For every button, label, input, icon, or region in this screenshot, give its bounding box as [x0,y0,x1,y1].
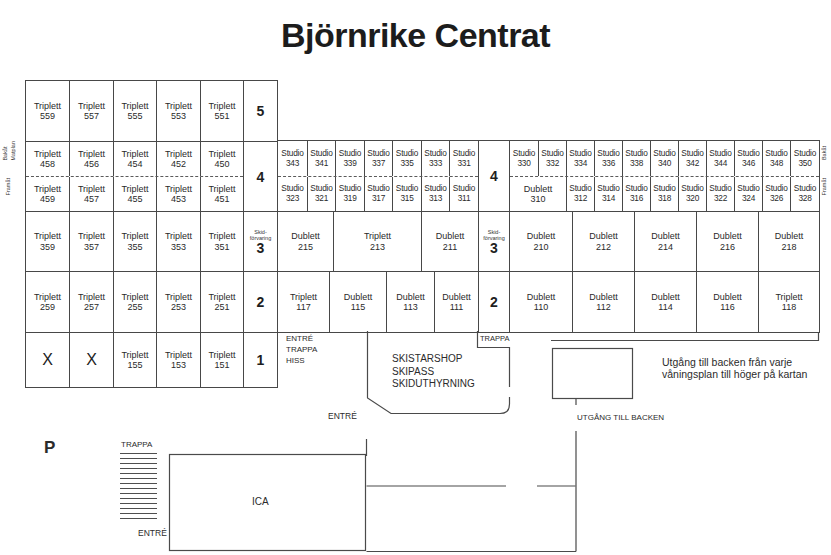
floor-row: Dublett215Triplett213Dublett211 [278,211,478,271]
floor-number-cell: 4 [244,141,277,211]
room-studio-338: Studio338 [622,141,650,176]
building-block-right-rooms: Studio330Studio332Studio334Studio336Stud… [509,140,820,333]
room-triplett-117: Triplett117 [278,272,329,332]
room-studio-322: Studio322 [706,177,734,211]
entre-left-label: ENTRÉ [138,528,167,538]
room-triplett-456: Triplett456 [69,142,113,176]
entre-shop-label: ENTRÉ [328,411,357,421]
floor-row: Triplett117Dublett115Dublett113Dublett11… [278,271,478,332]
room-studio-315: Studio315 [392,177,421,211]
room-studio-328: Studio328 [790,177,819,211]
room-triplett-118: Triplett118 [758,272,819,332]
room-triplett-151: Triplett151 [200,333,243,387]
room-studio-336: Studio336 [594,141,622,176]
floor-number: 4 [490,169,498,183]
room-triplett-559: Triplett559 [26,81,69,141]
floor-number: 4 [257,170,265,184]
room-triplett-259: Triplett259 [26,272,69,332]
floor-row: Dublett110Dublett112Dublett114Dublett116… [510,271,819,332]
room-triplett-455: Triplett455 [113,177,156,211]
room-triplett-153: Triplett153 [156,333,200,387]
floor-row: Triplett459Triplett457Triplett455Triplet… [26,176,243,211]
room-triplett-213: Triplett213 [333,212,421,271]
room-dublett-111: Dublett111 [434,272,478,332]
room-triplett-451: Triplett451 [200,177,243,211]
floor-number-cell: Skid-förvaring3 [479,211,509,271]
room-studio-343: Studio343 [278,141,307,176]
room-dublett-215: Dublett215 [278,212,333,271]
ica-label: ICA [252,496,269,507]
room-triplett-458: Triplett458 [26,142,69,176]
exit-stair-box [553,349,633,399]
room-triplett-551: Triplett551 [200,81,243,141]
room-dublett-112: Dublett112 [572,272,634,332]
floor-row: Triplett559Triplett557Triplett555Triplet… [26,81,243,141]
skistarshop-label: SKISTARSHOP SKIPASS SKIDUTHYRNING [392,353,475,391]
room-triplett-454: Triplett454 [113,142,156,176]
floor-row: Dublett210Dublett212Dublett214Dublett216… [510,211,819,271]
floor-row: Triplett359Triplett357Triplett355Triplet… [26,211,243,271]
trappa-mid-label: TRAPPA [480,334,509,343]
floor-number-cell: 2 [479,271,509,332]
room-studio-316: Studio316 [622,177,650,211]
floor-row: Studio323Studio321Studio319Studio317Stud… [278,176,478,211]
room-studio-323: Studio323 [278,177,307,211]
room-studio-348: Studio348 [762,141,790,176]
room-dublett-114: Dublett114 [634,272,696,332]
floor-number: 2 [257,295,265,309]
room-triplett-257: Triplett257 [69,272,113,332]
room-triplett-557: Triplett557 [69,81,113,141]
room-triplett-155: Triplett155 [113,333,156,387]
room-dublett-115: Dublett115 [329,272,386,332]
room-studio-324: Studio324 [734,177,762,211]
room-dublett-211: Dublett211 [421,212,478,271]
building-block-middle-rooms: Studio343Studio341Studio339Studio337Stud… [277,140,479,333]
room-studio-321: Studio321 [307,177,335,211]
room-studio-313: Studio313 [421,177,449,211]
room-dublett-110: Dublett110 [510,272,572,332]
room-dublett-116: Dublett116 [696,272,758,332]
room-dublett-310: Dublett310 [510,177,566,211]
room-studio-342: Studio342 [678,141,706,176]
floor-row: Dublett310Studio312Studio314Studio316Stu… [510,176,819,211]
room-studio-339: Studio339 [335,141,364,176]
room-triplett-452: Triplett452 [156,142,200,176]
room-studio-333: Studio333 [421,141,449,176]
building-block-middle-floor-column: 4Skid-förvaring32 [478,140,510,333]
room-triplett-353: Triplett353 [156,212,200,271]
stairs-hatch [120,453,157,520]
room-dublett-212: Dublett212 [572,212,634,271]
orientation-right-top: Bakåt [821,146,828,160]
room-studio-312: Studio312 [566,177,594,211]
room-studio-311: Studio311 [449,177,478,211]
room-triplett-457: Triplett457 [69,177,113,211]
room-closed-x: X [69,333,113,387]
building-block-left-floor-column: 54Skid-förvaring321 [243,80,278,388]
room-triplett-253: Triplett253 [156,272,200,332]
entre-trappa-hiss-label: ENTRÉ TRAPPA HISS [286,333,317,366]
room-triplett-355: Triplett355 [113,212,156,271]
room-triplett-453: Triplett453 [156,177,200,211]
room-studio-335: Studio335 [392,141,421,176]
room-triplett-553: Triplett553 [156,81,200,141]
floor-number: 2 [490,295,498,309]
building-block-left-rooms: Triplett559Triplett557Triplett555Triplet… [25,80,244,388]
room-dublett-210: Dublett210 [510,212,572,271]
floor-number: 1 [257,353,265,367]
room-studio-314: Studio314 [594,177,622,211]
room-dublett-216: Dublett216 [696,212,758,271]
orientation-left-top: Bakåt Matplan [2,141,17,161]
floor-row: Triplett259Triplett257Triplett255Triplet… [26,271,243,332]
room-triplett-251: Triplett251 [200,272,243,332]
room-dublett-113: Dublett113 [386,272,434,332]
orientation-right-bottom: Framåt [821,178,828,195]
room-studio-334: Studio334 [566,141,594,176]
room-studio-340: Studio340 [650,141,678,176]
room-studio-344: Studio344 [706,141,734,176]
room-studio-318: Studio318 [650,177,678,211]
room-studio-319: Studio319 [335,177,364,211]
parking-label: P [44,438,55,458]
floor-row: XXTriplett155Triplett153Triplett151 [26,332,243,387]
floor-number-cell: 1 [244,332,277,387]
room-studio-341: Studio341 [307,141,335,176]
right-lower-wall [551,332,819,341]
floor-number-cell: 4 [479,141,509,211]
floor-number-cell: 2 [244,271,277,332]
room-closed-x: X [26,333,69,387]
utgang-till-backen-label: UTGÅNG TILL BACKEN [577,413,664,422]
room-studio-337: Studio337 [364,141,392,176]
room-studio-331: Studio331 [449,141,478,176]
page-title: Björnrike Centrat [0,16,831,55]
room-triplett-255: Triplett255 [113,272,156,332]
floor-row: Studio330Studio332Studio334Studio336Stud… [510,141,819,176]
exit-note: Utgång till backen från varje våningspla… [662,357,807,381]
room-triplett-357: Triplett357 [69,212,113,271]
floor-number-cell: Skid-förvaring3 [244,211,277,271]
room-dublett-214: Dublett214 [634,212,696,271]
room-triplett-351: Triplett351 [200,212,243,271]
floor-row: Studio343Studio341Studio339Studio337Stud… [278,141,478,176]
floor-plan: Björnrike Centrat Bakåt Matplan Framåt [0,0,831,555]
trappa-left-label: TRAPPA [121,440,152,449]
room-studio-332: Studio332 [538,141,566,176]
floor-row: Triplett458Triplett456Triplett454Triplet… [26,141,243,176]
orientation-left-bottom: Framåt [5,178,12,195]
floor-number: 3 [257,241,265,255]
room-studio-346: Studio346 [734,141,762,176]
room-dublett-218: Dublett218 [758,212,819,271]
room-studio-326: Studio326 [762,177,790,211]
room-studio-330: Studio330 [510,141,538,176]
room-studio-320: Studio320 [678,177,706,211]
floor-number-cell: 5 [244,81,277,141]
room-studio-350: Studio350 [790,141,819,176]
room-triplett-459: Triplett459 [26,177,69,211]
floor-number: 5 [257,104,265,118]
room-triplett-450: Triplett450 [200,142,243,176]
room-studio-317: Studio317 [364,177,392,211]
floor-number: 3 [490,241,498,255]
room-triplett-359: Triplett359 [26,212,69,271]
room-triplett-555: Triplett555 [113,81,156,141]
